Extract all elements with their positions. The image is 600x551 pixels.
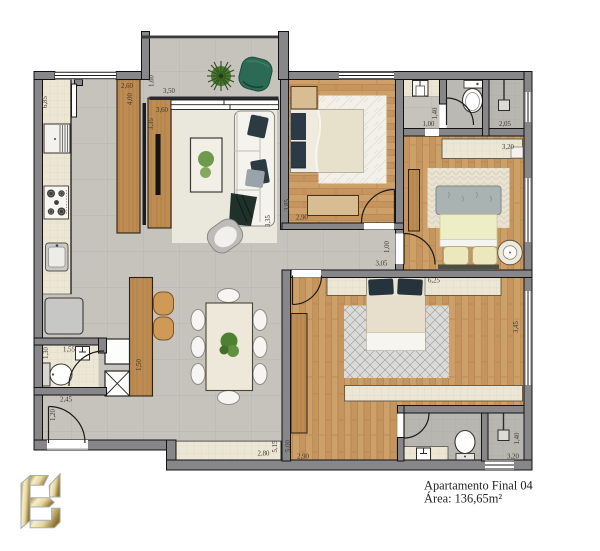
- svg-text:Apartamento Final 04: Apartamento Final 04: [424, 479, 533, 493]
- svg-text:2,90: 2,90: [296, 215, 308, 222]
- svg-text:1,40: 1,40: [432, 107, 439, 119]
- svg-text:3,60: 3,60: [156, 107, 168, 114]
- svg-text:3,50: 3,50: [163, 88, 175, 95]
- svg-text:1,30: 1,30: [43, 346, 50, 358]
- svg-text:3,45: 3,45: [513, 320, 520, 332]
- svg-text:3,20: 3,20: [502, 144, 514, 151]
- svg-text:2,45: 2,45: [60, 397, 72, 404]
- svg-text:1,55: 1,55: [63, 347, 75, 354]
- svg-text:3,35: 3,35: [148, 117, 155, 129]
- svg-text:4,00: 4,00: [127, 92, 134, 104]
- svg-text:1,00: 1,00: [423, 121, 435, 128]
- svg-text:5,15: 5,15: [272, 440, 279, 452]
- svg-text:6,85: 6,85: [42, 95, 49, 107]
- svg-text:1,60: 1,60: [149, 74, 156, 86]
- svg-text:3,05: 3,05: [376, 261, 388, 268]
- svg-text:2,90: 2,90: [297, 454, 309, 461]
- svg-text:1,50: 1,50: [136, 358, 143, 370]
- svg-text:3,20: 3,20: [507, 454, 519, 461]
- svg-text:1,40: 1,40: [514, 432, 521, 444]
- svg-text:Área: 136,65m²: Área: 136,65m²: [424, 492, 502, 506]
- svg-text:3,85: 3,85: [284, 198, 291, 210]
- svg-text:2,05: 2,05: [499, 121, 511, 128]
- svg-text:3,35: 3,35: [265, 214, 272, 226]
- svg-text:6,25: 6,25: [428, 278, 440, 285]
- svg-text:1,00: 1,00: [384, 240, 391, 252]
- svg-text:1,20: 1,20: [50, 408, 57, 420]
- svg-text:5,00: 5,00: [285, 439, 292, 451]
- svg-text:2,80: 2,80: [258, 451, 270, 458]
- svg-text:2,60: 2,60: [121, 83, 133, 90]
